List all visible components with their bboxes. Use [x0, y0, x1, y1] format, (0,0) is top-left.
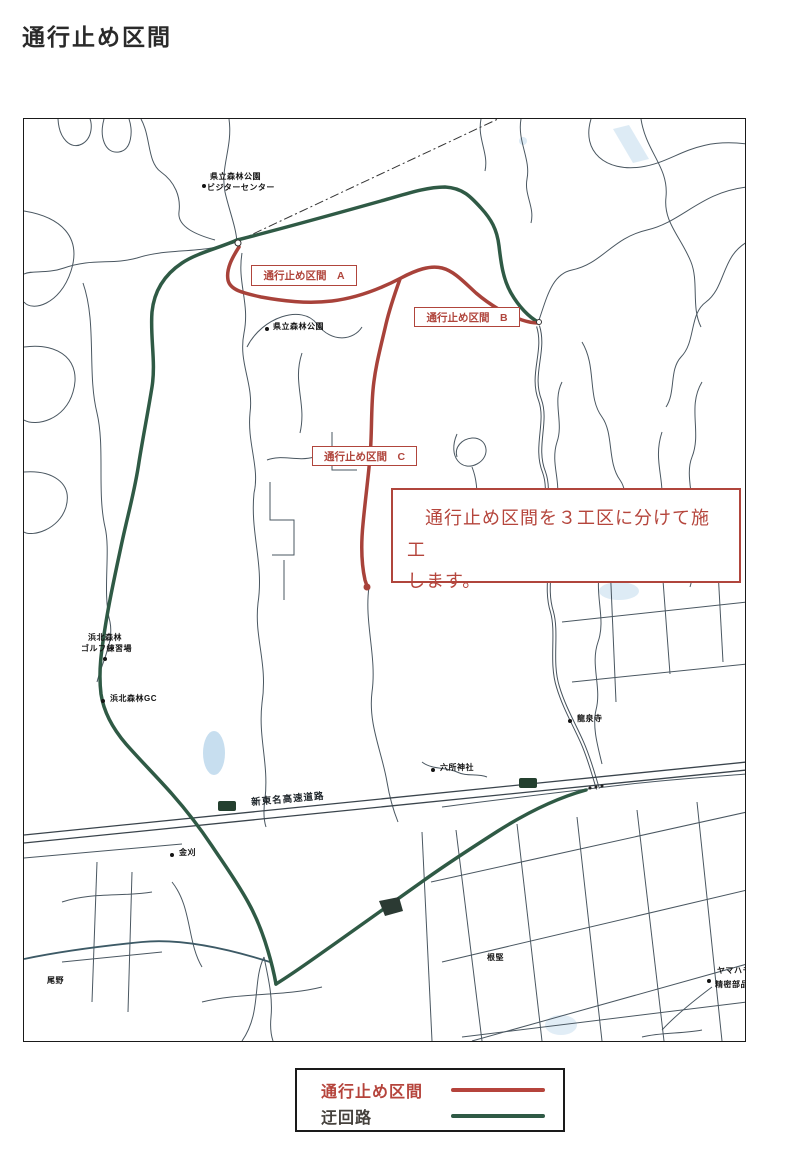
- poi-label-yamaha-1: ヤマハモ: [717, 967, 746, 975]
- note-line-1: 通行止め区間を３工区に分けて施工: [407, 503, 725, 566]
- river-line: [24, 941, 270, 962]
- closure-label-a: 通行止め区間 A: [251, 265, 357, 286]
- poi-dot-ryusenji: [568, 719, 572, 723]
- poi-dot-golf-range: [103, 657, 107, 661]
- poi-label-golf-range-1: 浜北森林: [88, 634, 122, 642]
- poi-label-hamakita-gc: 浜北森林GC: [110, 695, 157, 703]
- junction-circle: [235, 240, 241, 246]
- poi-dot-visitor-center: [202, 184, 206, 188]
- note-line-2: します。: [407, 566, 725, 598]
- document-page: 通行止め区間: [0, 0, 800, 1160]
- poi-dot-forest-park: [265, 327, 269, 331]
- legend-label-detour: 迂回路: [321, 1104, 451, 1128]
- poi-label-visitor-center: ビジターセンター: [207, 184, 275, 192]
- poi-dot-yamaha: [707, 979, 711, 983]
- poi-dot-kanagari: [170, 853, 174, 857]
- expressway-badge: [218, 801, 236, 811]
- legend-swatch-detour: [451, 1114, 545, 1118]
- legend-row-detour: 迂回路: [321, 1103, 545, 1129]
- closure-label-b: 通行止め区間 B: [414, 307, 520, 327]
- poi-dot-hamakita-gc: [101, 699, 105, 703]
- legend-label-closure: 通行止め区間: [321, 1078, 451, 1102]
- poi-label-ono: 尾野: [47, 977, 64, 985]
- poi-label-forest-park: 県立森林公園: [273, 323, 324, 331]
- route-meeting-circle: [537, 320, 542, 325]
- legend: 通行止め区間 迂回路: [295, 1068, 565, 1132]
- map-frame: 県立森林公園 ビジターセンター 県立森林公園 浜北森林 ゴルフ練習場 浜北森林G…: [23, 118, 746, 1042]
- legend-row-closure: 通行止め区間: [321, 1077, 545, 1103]
- poi-label-negata: 根堅: [487, 954, 504, 962]
- poi-label-kanagari: 金刈: [179, 849, 196, 857]
- expressway-badge: [519, 778, 537, 788]
- poi-label-rokusho-shrine: 六所神社: [440, 764, 474, 772]
- route-marker-blob: [379, 897, 403, 916]
- poi-label-yamaha-2: 精密部品: [715, 981, 746, 989]
- legend-swatch-closure: [451, 1088, 545, 1092]
- closure-label-c: 通行止め区間 C: [312, 446, 417, 466]
- closure-endpoint-dot: [364, 584, 371, 591]
- page-title: 通行止め区間: [22, 18, 172, 52]
- poi-label-prefectural-forest-park: 県立森林公園: [210, 173, 261, 181]
- boundary-line: [238, 119, 498, 241]
- poi-label-golf-range-2: ゴルフ練習場: [81, 645, 132, 653]
- construction-note-box: 通行止め区間を３工区に分けて施工 します。: [391, 488, 741, 583]
- poi-label-ryusenji: 龍泉寺: [577, 715, 603, 723]
- poi-dot-rokusho-shrine: [431, 768, 435, 772]
